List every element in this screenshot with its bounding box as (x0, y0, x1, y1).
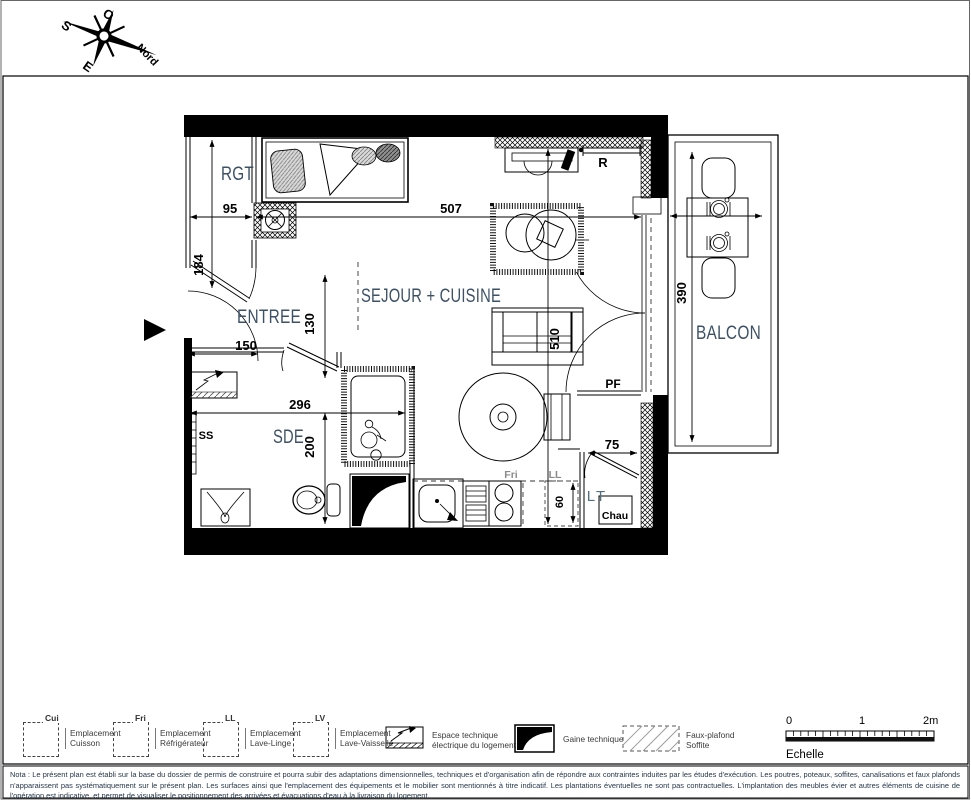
legend-text-line: Espace technique (432, 730, 498, 740)
washbasin (201, 489, 250, 526)
toilet (293, 484, 340, 516)
chauffe-eau-tag: Chau (602, 510, 628, 522)
vmc-box (254, 203, 296, 238)
pillow (270, 148, 306, 193)
compass-north-label: Nord (134, 42, 160, 69)
plan-drawing: O S E Nord (0, 0, 971, 800)
room-label-sejour: SEJOUR + CUISINE (361, 286, 501, 307)
dim-sde-width: 296 (289, 397, 311, 412)
floor-plan-page: O S E Nord (0, 0, 971, 800)
seche-serviettes-tag: SS (199, 430, 214, 442)
dim-sejour-width: 507 (440, 201, 462, 216)
porte-fenetre-tag: PF (605, 377, 620, 391)
kitchen-sink (413, 479, 463, 528)
interior-walls (186, 137, 641, 528)
legend-text-line: électrique du logement (432, 740, 516, 750)
gaine-technique (350, 474, 409, 528)
dim-rgt-width: 95 (223, 201, 237, 216)
legend-code: Fri (133, 713, 148, 723)
legend-text-line: Cuisson (70, 738, 100, 748)
gaine-technique-icon (513, 723, 557, 757)
legend-text-line: Lave-Linge (250, 738, 291, 748)
dashed-box-icon (203, 722, 239, 757)
room-label-rgt: RGT (221, 164, 254, 185)
balcony-chair-top (702, 158, 735, 198)
room-label-sde: SDE (273, 427, 304, 448)
kitchen-top-counter (505, 148, 578, 175)
lave-linge-tag: LL (549, 469, 562, 481)
legend-text-line: Soffite (686, 740, 709, 750)
scale-label: Echelle (786, 749, 824, 761)
faux-plafond-icon (622, 725, 682, 757)
sofa (492, 308, 583, 365)
legend-text-line: Emplacement (340, 728, 391, 738)
dashed-box-icon (293, 722, 329, 757)
plan-frame (3, 76, 968, 764)
room-label-balcon: BALCON (696, 323, 761, 344)
scale-tick-2m: 2m (923, 715, 938, 727)
dim-rgt-height: 184 (191, 253, 206, 275)
compass-south-label: S (59, 17, 75, 34)
espace-technique-icon (385, 725, 425, 757)
compass-rose: O S E Nord (52, 0, 166, 85)
fridge-tag: Fri (504, 469, 518, 481)
dining-table (459, 373, 570, 461)
soffite-hatch-right-upper (641, 140, 651, 198)
dim-closet-door: 75 (605, 437, 619, 452)
compass-east-label: E (80, 58, 96, 75)
place-setting-icon (707, 198, 730, 218)
compass-west-label: O (100, 5, 117, 23)
dim-sejour-height: 510 (547, 328, 562, 350)
place-setting-icon (707, 232, 730, 252)
hob (489, 481, 521, 526)
dim-appliance-gap: 60 (554, 496, 566, 508)
dim-entree-width: 150 (235, 338, 257, 353)
soffite-hatch-top (495, 137, 643, 148)
sde-door (282, 343, 339, 371)
dim-entree-height: 130 (302, 313, 317, 335)
scale-bar: 0 1 2m Echelle (780, 710, 950, 766)
legend-text-line: Réfrigérateur (160, 738, 208, 748)
dashed-box-icon (23, 722, 59, 757)
local-technique-tag: LT (587, 488, 607, 505)
balcony-chair-bottom (702, 258, 735, 298)
cushion (352, 147, 376, 165)
legend-text-line: Gaine technique (563, 734, 623, 744)
legend-code: Cui (43, 713, 61, 723)
shower (344, 369, 412, 464)
legend-code: LL (223, 713, 237, 723)
scale-tick-0: 0 (786, 715, 792, 727)
legend-text-line: Faux-plafond (686, 730, 734, 740)
dim-balcon-height: 390 (674, 282, 689, 304)
closet-door (585, 451, 639, 478)
room-label-entree: ENTREE (237, 307, 301, 328)
soffite-hatch-right-lower (641, 403, 653, 528)
legend-code: LV (313, 713, 327, 723)
electrical-panel (190, 370, 237, 398)
radiator-tag: R (598, 155, 608, 170)
scale-tick-1: 1 (859, 715, 865, 727)
entrance-arrow-icon (144, 319, 166, 341)
dashed-box-icon (113, 722, 149, 757)
faucet-icon (561, 149, 575, 171)
cushion (376, 144, 400, 162)
nota-text: Nota : Le présent plan est établi sur la… (10, 770, 960, 800)
dim-sde-height: 200 (302, 436, 317, 458)
dish-drainer (463, 481, 489, 526)
rug-and-armchairs (493, 206, 589, 272)
bed (262, 138, 408, 202)
